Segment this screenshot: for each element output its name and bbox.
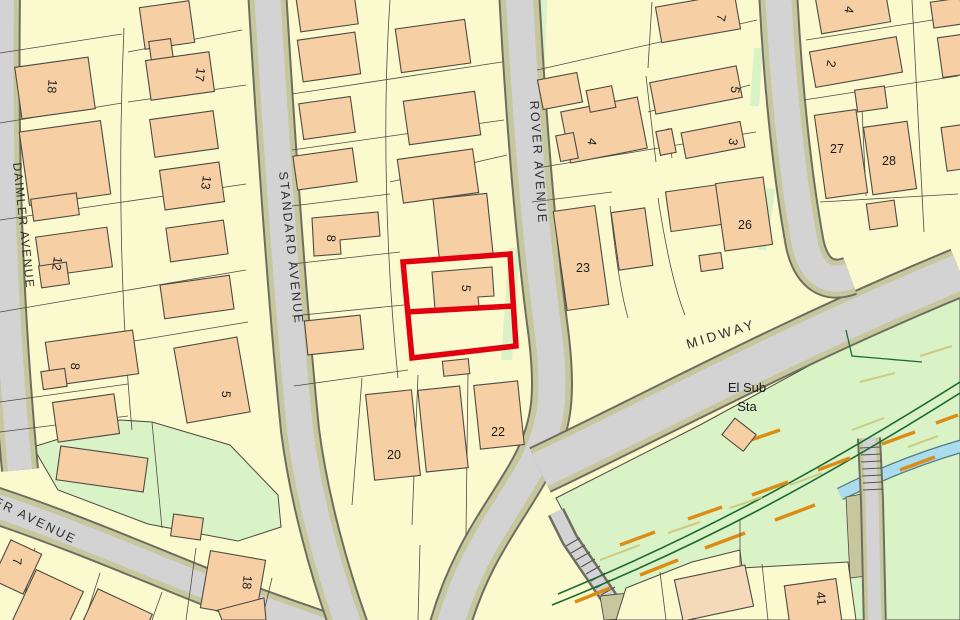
map-canvas[interactable]: DAIMLER AVENUE STANDARD AVENUE ROVER AVE… (0, 0, 960, 620)
house-number: 18 (44, 79, 59, 94)
house-number: 8 (324, 234, 339, 242)
house-number: 8 (68, 362, 83, 370)
house-number: 27 (830, 142, 844, 156)
substation-label-line2: Sta (737, 399, 757, 414)
house-number: 17 (192, 67, 208, 83)
house-number: 5 (219, 390, 234, 398)
house-number: 20 (387, 448, 401, 462)
house-number: 5 (459, 284, 474, 292)
house-number: 26 (738, 218, 752, 232)
house-number: 23 (576, 261, 590, 275)
house-number: 13 (198, 175, 214, 191)
house-number: 12 (49, 256, 65, 272)
house-number: 41 (813, 591, 828, 606)
substation-label-line1: El Sub (728, 380, 766, 395)
house-number: 22 (491, 425, 505, 439)
path-core (869, 438, 875, 620)
house-number: 18 (239, 575, 254, 590)
site-plan-map: DAIMLER AVENUE STANDARD AVENUE ROVER AVE… (0, 0, 960, 620)
house-number: 28 (882, 154, 896, 168)
house-number: 7 (10, 557, 25, 565)
